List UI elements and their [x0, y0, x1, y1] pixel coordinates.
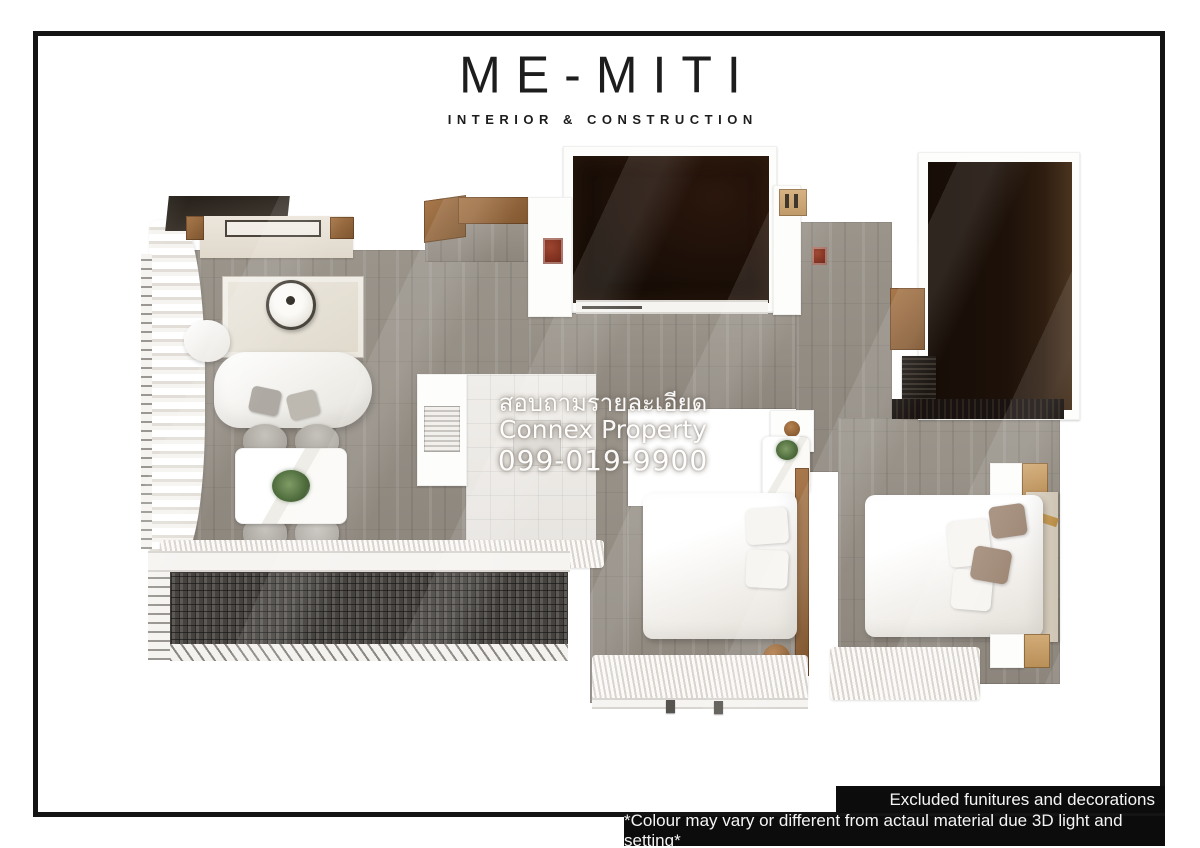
- bed-1-headboard-panel: [795, 468, 809, 676]
- page: ME-MITI INTERIOR & CONSTRUCTION: [0, 0, 1200, 848]
- watermark-line-1: สอบถามรายละเอียด: [448, 390, 758, 416]
- note-excluded-furniture: Excluded funitures and decorations: [836, 786, 1165, 813]
- nightstand-bottom-white: [990, 634, 1024, 668]
- bed-2-pillow-taupe-2: [969, 545, 1012, 585]
- railing-post-1: [666, 700, 675, 713]
- balcony-sill-1: [592, 698, 808, 709]
- nightstand-bottom-wood: [1024, 634, 1050, 668]
- balcony-sill: [148, 551, 570, 572]
- kettle: [286, 296, 295, 305]
- balcony-railing-hatch: [170, 644, 568, 661]
- vanity-wood-bowl: [784, 421, 800, 437]
- appliance-slot-1: [785, 194, 789, 208]
- bed-1-pillow-1: [745, 507, 789, 546]
- cooktop: [543, 238, 563, 264]
- balcony-mesh-deck: [170, 572, 568, 648]
- railing-post-2: [714, 701, 723, 714]
- note-colour-disclaimer: *Colour may vary or different from actau…: [624, 816, 1165, 846]
- utility-appliance: [779, 189, 807, 216]
- ac-strip: [892, 399, 1064, 419]
- nightstand-top-white: [990, 463, 1022, 497]
- lounge-chair: [184, 320, 230, 362]
- dining-centerpiece-plant: [272, 470, 310, 502]
- watermark-line-3: 099-019-9900: [448, 445, 758, 477]
- curtain-fringe-2: [830, 647, 980, 700]
- dark-room-2: [928, 162, 1072, 410]
- kitchen-upper-cabinet-2: [458, 197, 536, 224]
- dark-room-1: [573, 156, 769, 303]
- watermark: สอบถามรายละเอียด Connex Property 099-019…: [448, 390, 758, 477]
- stove-accent: [812, 247, 827, 265]
- bed-1-pillow-2: [745, 549, 789, 589]
- left-window-rail: [141, 254, 152, 549]
- curtain-fringe-1: [592, 655, 808, 700]
- appliance-slot-2: [794, 194, 798, 208]
- balcony-side-rail: [148, 572, 170, 660]
- threshold-track: [582, 306, 642, 309]
- coffee-table: [266, 280, 316, 330]
- bedside-plant-1: [776, 440, 798, 460]
- wardrobe-panel: [890, 288, 925, 350]
- tv-screen: [225, 220, 321, 237]
- watermark-line-2: Connex Property: [448, 416, 758, 445]
- bed-2-pillow-taupe-1: [988, 503, 1028, 540]
- left-curtains: [149, 220, 205, 558]
- console-side-wood-left: [186, 216, 204, 240]
- console-side-wood-right: [330, 217, 354, 239]
